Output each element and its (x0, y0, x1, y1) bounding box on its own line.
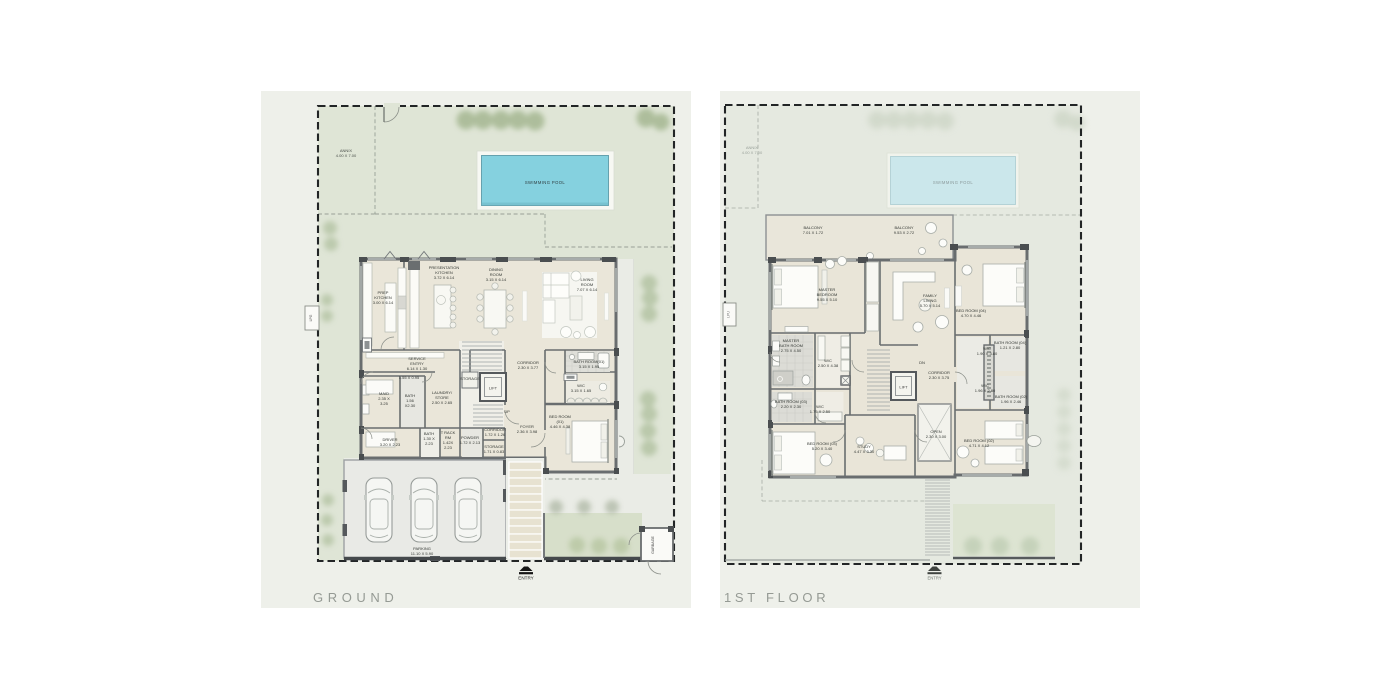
svg-text:2.75 X 4.50: 2.75 X 4.50 (781, 348, 802, 353)
svg-text:6.14 X 1.30: 6.14 X 1.30 (407, 366, 428, 371)
svg-text:2.50 X 2.65: 2.50 X 2.65 (432, 400, 453, 405)
svg-text:GROUND: GROUND (313, 590, 398, 605)
svg-text:1.96 X 2.80: 1.96 X 2.80 (975, 388, 996, 393)
svg-text:3.25: 3.25 (380, 401, 389, 406)
svg-text:7.07 X 6.14: 7.07 X 6.14 (577, 287, 598, 292)
svg-text:3.00 X 6.14: 3.00 X 6.14 (373, 300, 394, 305)
svg-text:5.70 X 5.14: 5.70 X 5.14 (920, 303, 941, 308)
svg-text:1.72 X 2.13: 1.72 X 2.13 (460, 440, 481, 445)
svg-text:4.71 X 4.12: 4.71 X 4.12 (969, 443, 990, 448)
svg-text:1.90 X 3.80: 1.90 X 3.80 (977, 351, 998, 356)
svg-text:ENTRY: ENTRY (518, 576, 534, 581)
svg-text:LPG: LPG (309, 314, 313, 321)
svg-text:DN: DN (919, 360, 925, 365)
svg-text:LIFT: LIFT (899, 385, 908, 390)
svg-text:7.01 X 1.72: 7.01 X 1.72 (803, 230, 824, 235)
svg-text:4.47 X 3.30: 4.47 X 3.30 (854, 449, 875, 454)
svg-text:LPU: LPU (727, 311, 731, 318)
svg-text:9.55 X 5.10: 9.55 X 5.10 (817, 297, 838, 302)
svg-text:SWIMMING POOL: SWIMMING POOL (525, 180, 566, 185)
svg-text:2.20 X 2.30: 2.20 X 2.30 (781, 404, 802, 409)
svg-text:9.53 X 2.72: 9.53 X 2.72 (894, 230, 915, 235)
svg-text:ENTRY: ENTRY (927, 576, 941, 581)
svg-text:3.20 X 2.23: 3.20 X 2.23 (380, 442, 401, 447)
svg-text:4.46 X 4.38: 4.46 X 4.38 (550, 424, 571, 429)
svg-text:4.70 X 4.46: 4.70 X 4.46 (961, 313, 982, 318)
svg-text:GARBAGE: GARBAGE (651, 536, 655, 554)
svg-text:2.23: 2.23 (444, 445, 453, 450)
svg-text:UP: UP (504, 409, 510, 414)
svg-text:2.36 X 3.98: 2.36 X 3.98 (517, 429, 538, 434)
svg-text:2.30 X 3.77: 2.30 X 3.77 (518, 365, 539, 370)
svg-text:11.10 X 5.90: 11.10 X 5.90 (411, 551, 434, 556)
svg-text:3.15 X 6.14: 3.15 X 6.14 (486, 277, 507, 282)
svg-text:2.30 X 3.00: 2.30 X 3.00 (926, 434, 947, 439)
svg-text:4.00 X 7.00: 4.00 X 7.00 (742, 150, 763, 155)
svg-text:1.72 X 1.26: 1.72 X 1.26 (485, 432, 506, 437)
svg-text:SWIMMING POOL: SWIMMING POOL (933, 180, 974, 185)
svg-text:4.00 X 7.00: 4.00 X 7.00 (336, 153, 357, 158)
svg-text:1.71 X 0.83: 1.71 X 0.83 (484, 449, 505, 454)
svg-text:STORAGE: STORAGE (460, 376, 480, 381)
svg-text:1.75 X 2.50: 1.75 X 2.50 (810, 409, 831, 414)
svg-text:1.55 X 0.95: 1.55 X 0.95 (399, 375, 420, 380)
svg-text:LIFT: LIFT (489, 386, 498, 391)
svg-text:3.15 X 1.65: 3.15 X 1.65 (571, 388, 592, 393)
svg-text:3.72 X 6.14: 3.72 X 6.14 (434, 275, 455, 280)
svg-text:2.50 X 4.38: 2.50 X 4.38 (818, 363, 839, 368)
svg-text:1.96 X 2.46: 1.96 X 2.46 (1001, 399, 1022, 404)
svg-text:X2.30: X2.30 (405, 403, 416, 408)
svg-text:3.15 X 1.95: 3.15 X 1.95 (579, 364, 600, 369)
svg-text:1ST FLOOR: 1ST FLOOR (724, 590, 829, 605)
svg-text:2.30 X 3.75: 2.30 X 3.75 (929, 375, 950, 380)
svg-text:1.21 X 2.80: 1.21 X 2.80 (1000, 345, 1021, 350)
svg-text:2.23: 2.23 (425, 441, 434, 446)
svg-text:5.20 X 3.40: 5.20 X 3.40 (812, 446, 833, 451)
